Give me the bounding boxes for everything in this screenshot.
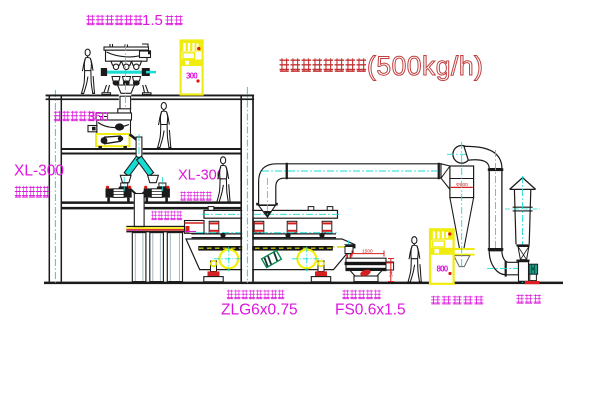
svg-text:FS0.6x1.5: FS0.6x1.5 [335, 302, 406, 319]
svg-text:350: 350 [88, 109, 108, 124]
svg-text:(500kg/h): (500kg/h) [367, 51, 483, 81]
svg-text:XL-300: XL-300 [14, 163, 64, 180]
svg-text:1.5: 1.5 [142, 12, 163, 29]
svg-text:540: 540 [389, 269, 395, 277]
svg-text:1500: 1500 [362, 249, 373, 255]
svg-text:300: 300 [186, 72, 198, 81]
svg-text:ZLG6x0.75: ZLG6x0.75 [221, 302, 298, 319]
svg-text:XL-300: XL-300 [178, 168, 225, 184]
svg-text:800: 800 [437, 265, 449, 274]
